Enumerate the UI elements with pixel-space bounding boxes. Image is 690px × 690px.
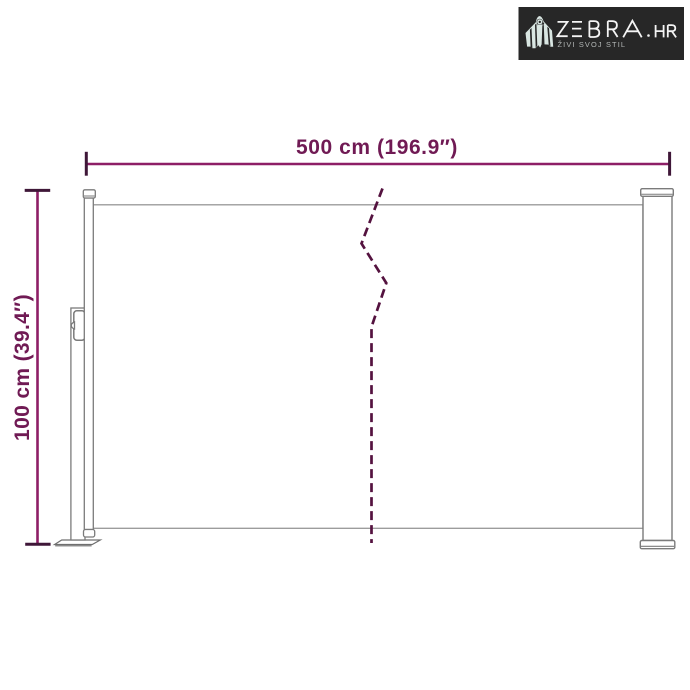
svg-text:ŽIVI SVOJ STIL: ŽIVI SVOJ STIL [558, 40, 627, 49]
svg-text:500 cm (196.9″): 500 cm (196.9″) [296, 136, 458, 159]
svg-text:100 cm (39.4″): 100 cm (39.4″) [11, 294, 34, 441]
